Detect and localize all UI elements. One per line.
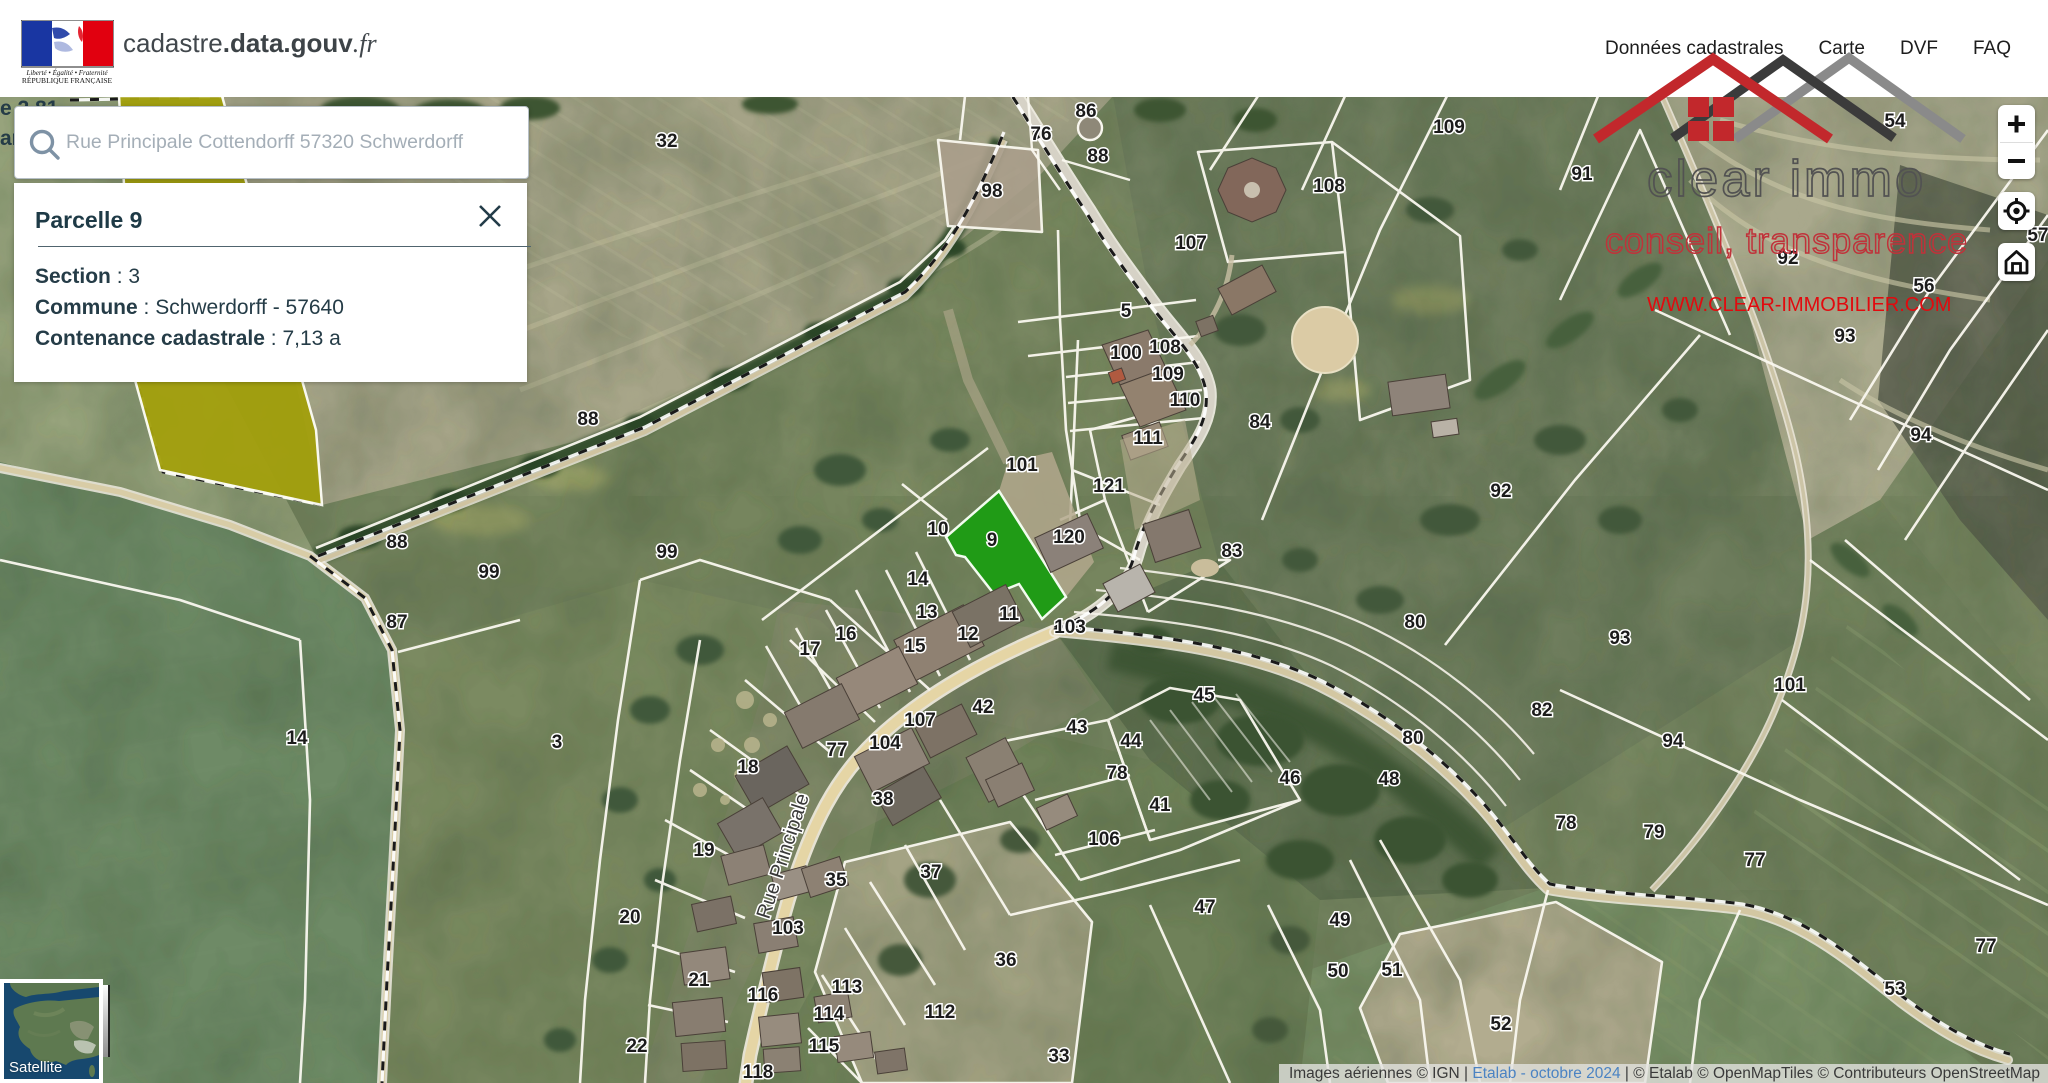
svg-text:107: 107 [904,710,936,731]
svg-text:21: 21 [688,970,710,991]
svg-text:87: 87 [386,612,407,633]
svg-text:93: 93 [1834,326,1855,347]
svg-text:106: 106 [1088,829,1120,850]
svg-text:10: 10 [927,519,948,540]
svg-text:99: 99 [478,562,499,583]
svg-text:79: 79 [1643,822,1664,843]
svg-text:76: 76 [1030,124,1051,145]
svg-text:43: 43 [1066,717,1087,738]
svg-text:104: 104 [869,733,901,754]
svg-text:54: 54 [1884,111,1906,132]
svg-text:50: 50 [1327,961,1348,982]
svg-text:88: 88 [1087,146,1108,167]
svg-text:32: 32 [656,131,677,152]
svg-text:103: 103 [772,918,804,939]
svg-text:112: 112 [925,1002,956,1023]
svg-text:47: 47 [1194,897,1215,918]
svg-text:38: 38 [872,789,893,810]
svg-text:94: 94 [1910,425,1932,446]
svg-text:80: 80 [1404,612,1425,633]
svg-text:11: 11 [999,604,1020,625]
svg-text:118: 118 [743,1062,774,1083]
svg-text:45: 45 [1193,685,1215,706]
svg-text:109: 109 [1152,364,1184,385]
svg-text:18: 18 [737,757,758,778]
svg-text:51: 51 [1381,960,1403,981]
svg-text:110: 110 [1170,390,1201,411]
svg-text:20: 20 [619,907,640,928]
svg-text:78: 78 [1106,763,1127,784]
svg-text:44: 44 [1120,731,1142,752]
svg-text:115: 115 [809,1036,840,1057]
svg-text:103: 103 [1054,617,1086,638]
svg-text:42: 42 [972,697,993,718]
svg-text:109: 109 [1433,117,1465,138]
svg-text:46: 46 [1279,768,1300,789]
svg-text:77: 77 [1975,936,1996,957]
svg-text:99: 99 [656,542,677,563]
svg-text:9: 9 [987,530,998,551]
svg-text:RÉPUBLIQUE FRANÇAISE: RÉPUBLIQUE FRANÇAISE [22,75,113,84]
svg-text:14: 14 [286,728,308,749]
svg-text:100: 100 [1110,343,1142,364]
svg-text:101: 101 [1774,675,1806,696]
svg-text:17: 17 [799,639,820,660]
svg-text:19: 19 [693,840,714,861]
svg-text:108: 108 [1313,176,1345,197]
svg-text:48: 48 [1378,769,1399,790]
svg-text:33: 33 [1048,1046,1069,1067]
svg-text:92: 92 [1490,481,1511,502]
svg-text:83: 83 [1221,541,1242,562]
svg-text:56: 56 [1913,276,1934,297]
svg-text:16: 16 [835,624,856,645]
svg-text:36: 36 [995,950,1016,971]
svg-text:49: 49 [1329,910,1350,931]
svg-text:107: 107 [1175,233,1207,254]
svg-text:77: 77 [826,740,847,761]
svg-text:113: 113 [832,977,863,998]
svg-text:91: 91 [1571,164,1593,185]
svg-text:35: 35 [825,870,847,891]
svg-text:77: 77 [1744,850,1765,871]
svg-text:108: 108 [1149,337,1181,358]
svg-text:80: 80 [1402,728,1423,749]
svg-text:14: 14 [907,569,929,590]
svg-text:53: 53 [1884,979,1905,1000]
svg-text:88: 88 [577,409,598,430]
svg-text:5: 5 [1121,301,1132,322]
svg-text:82: 82 [1531,700,1552,721]
svg-text:86: 86 [1075,101,1096,122]
svg-text:3: 3 [552,732,563,753]
svg-text:52: 52 [1490,1014,1511,1035]
svg-text:94: 94 [1662,731,1684,752]
svg-text:92: 92 [1777,248,1798,269]
svg-text:41: 41 [1149,795,1171,816]
svg-text:78: 78 [1555,813,1576,834]
svg-text:114: 114 [814,1004,845,1025]
svg-text:98: 98 [981,181,1002,202]
svg-text:101: 101 [1006,455,1038,476]
svg-text:15: 15 [904,636,926,657]
svg-text:88: 88 [386,532,407,553]
svg-text:116: 116 [748,985,779,1006]
svg-text:93: 93 [1609,628,1630,649]
svg-text:37: 37 [920,862,941,883]
svg-text:111: 111 [1133,428,1163,449]
svg-text:22: 22 [626,1036,647,1057]
svg-text:120: 120 [1053,527,1085,548]
svg-text:84: 84 [1249,412,1271,433]
svg-text:121: 121 [1093,476,1125,497]
svg-text:12: 12 [957,624,978,645]
svg-text:13: 13 [916,602,937,623]
